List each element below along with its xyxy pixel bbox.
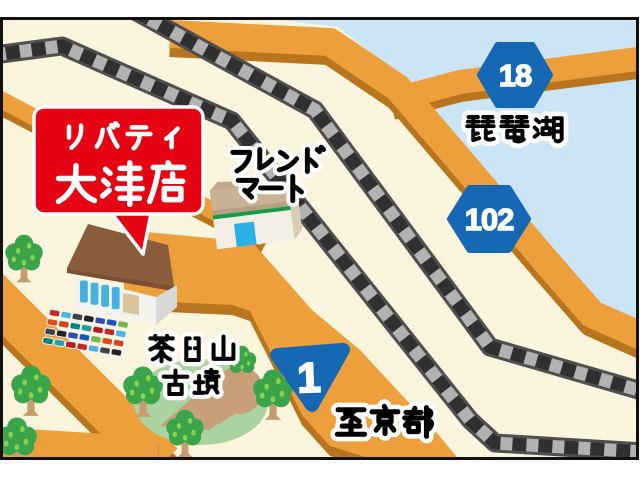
- svg-text:18: 18: [499, 58, 532, 93]
- svg-text:1: 1: [296, 354, 321, 402]
- svg-text:102: 102: [465, 202, 514, 237]
